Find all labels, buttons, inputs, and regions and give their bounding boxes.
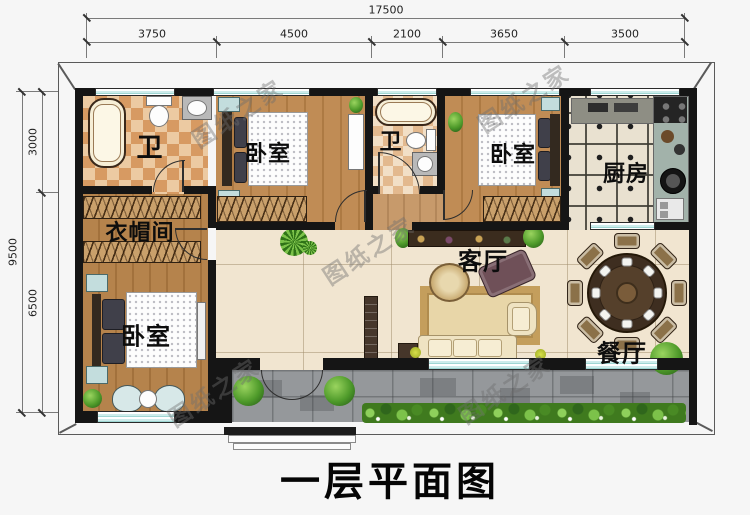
plant <box>448 112 463 132</box>
counter-appliance <box>614 103 638 112</box>
wall <box>216 222 335 230</box>
dim-top-seg-3: 2100 <box>393 28 421 41</box>
dining-plate <box>654 288 663 299</box>
toilet-bowl <box>406 132 426 149</box>
kitchen-counter-top <box>571 98 655 124</box>
plant <box>349 97 363 113</box>
plant-small <box>410 347 421 358</box>
entry-console <box>364 296 378 362</box>
dining-plate <box>622 258 633 267</box>
kitchen-jar <box>661 130 674 143</box>
dim-top-total: 17500 <box>369 4 404 17</box>
window <box>377 88 437 96</box>
patio-tile <box>560 376 594 394</box>
bathtub-basin <box>380 102 432 122</box>
room-label-dining: 餐厅 <box>597 334 647 369</box>
door-leaf <box>182 160 184 192</box>
sofa-cushion <box>428 339 452 357</box>
dim-left-seg-2: 6500 <box>27 289 40 317</box>
room-label-kitchen: 厨房 <box>603 156 649 188</box>
bed-bench <box>197 302 206 360</box>
room-label-cloakroom: 衣帽间 <box>105 215 174 247</box>
toilet-tank <box>426 129 436 151</box>
door-leaf <box>443 190 445 220</box>
room-label-bathroom-middle: 卫 <box>379 124 402 156</box>
floor-plan-canvas: 卫 卧室 卫 卧室 厨房 衣帽间 客厅 卧室 餐厅 图纸之家 图纸之家 图纸之家… <box>0 0 750 515</box>
dim-left-total: 9500 <box>7 238 20 266</box>
wall <box>412 222 569 230</box>
dim-top-seg-5: 3500 <box>611 28 639 41</box>
dining-chair <box>614 233 640 249</box>
counter-appliance <box>588 103 608 112</box>
armchair-cushion <box>512 307 530 331</box>
wall <box>75 186 152 194</box>
plant <box>303 241 317 255</box>
dim-line <box>87 42 685 43</box>
dim-top-seg-4: 3650 <box>490 28 518 41</box>
window <box>590 88 680 96</box>
wardrobe <box>483 196 561 222</box>
door-leaf <box>364 190 366 222</box>
wall <box>208 186 216 228</box>
kitchen-sink-basin <box>666 174 680 188</box>
wall <box>75 88 83 423</box>
room-label-living: 客厅 <box>458 242 508 277</box>
side-table <box>139 390 157 408</box>
dim-line <box>42 92 43 413</box>
bathtub-basin <box>93 104 121 162</box>
stove <box>654 97 687 123</box>
room-label-bedroom-bottom: 卧室 <box>121 317 171 352</box>
bed-headboard <box>550 114 560 186</box>
wall <box>561 88 569 230</box>
window <box>97 411 175 423</box>
kitchen-jar <box>674 144 685 155</box>
dim-line <box>22 92 23 413</box>
room-label-bedroom-right: 卧室 <box>490 137 536 169</box>
nightstand <box>86 274 108 292</box>
dim-top-seg-2: 4500 <box>280 28 308 41</box>
room-label-bathroom-left: 卫 <box>136 128 163 165</box>
dining-chair <box>671 280 687 306</box>
sofa-cushion <box>478 339 502 357</box>
dining-chair <box>567 280 583 306</box>
plant <box>83 389 102 408</box>
plan-title: 一层平面图 <box>280 449 500 507</box>
window <box>95 88 175 96</box>
dim-ext <box>36 192 58 193</box>
sofa-cushion <box>453 339 477 357</box>
patio-edge <box>224 427 356 435</box>
wall <box>323 358 428 370</box>
wall <box>437 88 445 190</box>
room-label-bedroom-top: 卧室 <box>245 136 291 168</box>
dim-ext <box>86 13 87 58</box>
door-leaf <box>175 228 207 230</box>
dining-plate <box>622 320 633 329</box>
patio-tile <box>420 378 456 396</box>
dishwasher-detail <box>660 202 668 209</box>
wardrobe <box>217 196 307 222</box>
bed-headboard <box>92 294 101 366</box>
dim-top-seg-1: 3750 <box>138 28 166 41</box>
dim-line <box>87 18 685 19</box>
dining-plate <box>592 288 601 299</box>
toilet-bowl <box>149 105 169 127</box>
dim-left-seg-1: 3000 <box>27 128 40 156</box>
dresser <box>348 114 364 170</box>
kitchen-pass-window <box>590 222 655 230</box>
sink-basin <box>417 156 433 172</box>
dining-table-center <box>616 282 638 304</box>
dishwasher-detail <box>660 211 668 218</box>
wall <box>658 358 697 370</box>
wall <box>655 222 697 230</box>
dim-ext <box>684 13 685 58</box>
wall <box>689 88 697 425</box>
bush <box>324 376 355 406</box>
nightstand <box>86 366 108 384</box>
entry-step <box>228 435 356 443</box>
flower-bed <box>362 403 686 423</box>
door-leaf <box>378 152 380 194</box>
